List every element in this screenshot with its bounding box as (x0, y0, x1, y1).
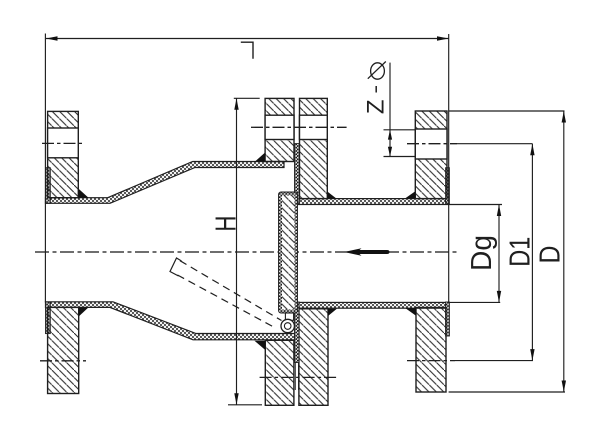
svg-text:D1: D1 (505, 237, 537, 267)
svg-text:Z: Z (362, 99, 389, 114)
svg-text:D: D (535, 246, 567, 264)
svg-text:Dg: Dg (466, 235, 498, 271)
svg-text:H: H (211, 216, 243, 232)
